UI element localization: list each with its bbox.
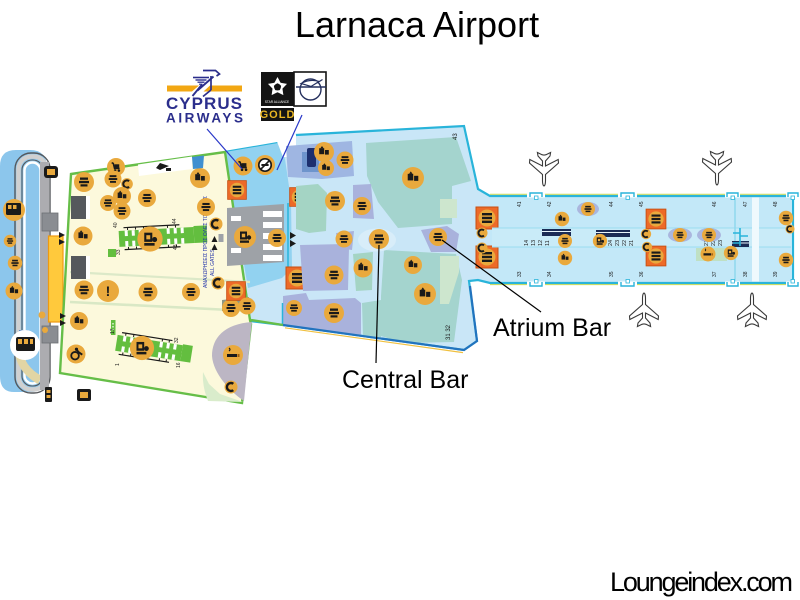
svg-text:21: 21 [629, 240, 635, 246]
svg-text:23: 23 [718, 240, 724, 246]
svg-text:12: 12 [538, 240, 544, 246]
svg-text:32: 32 [174, 337, 180, 343]
svg-text:41: 41 [517, 201, 523, 207]
svg-text:39: 39 [773, 271, 779, 277]
svg-text:16: 16 [176, 362, 182, 368]
svg-text:33: 33 [517, 271, 523, 277]
svg-text:ALL GATES: ALL GATES [210, 249, 216, 276]
svg-text:40: 40 [113, 222, 119, 228]
svg-text:33: 33 [116, 249, 122, 255]
svg-text:48: 48 [173, 244, 179, 250]
svg-text:GOLD: GOLD [260, 109, 296, 121]
svg-text:STAR ALLIANCE: STAR ALLIANCE [265, 100, 289, 104]
svg-text:42: 42 [547, 201, 553, 207]
svg-text:44: 44 [172, 218, 178, 224]
svg-text:Central Bar: Central Bar [342, 366, 468, 394]
svg-text:35: 35 [609, 271, 615, 277]
svg-text:45: 45 [639, 201, 645, 207]
svg-text:23: 23 [615, 240, 621, 246]
svg-text:34: 34 [547, 271, 553, 277]
svg-text:Loungeindex.com: Loungeindex.com [610, 567, 793, 597]
svg-text:44: 44 [609, 201, 615, 207]
svg-text:1: 1 [115, 363, 121, 366]
svg-text:48: 48 [773, 201, 779, 207]
svg-text:13: 13 [531, 240, 537, 246]
svg-text:36: 36 [639, 271, 645, 277]
svg-text:47: 47 [743, 201, 749, 207]
svg-text:31 32: 31 32 [446, 324, 452, 340]
svg-text:Larnaca Airport: Larnaca Airport [295, 4, 539, 45]
svg-text:46: 46 [712, 201, 718, 207]
svg-text:17: 17 [110, 328, 116, 334]
svg-text:38: 38 [743, 271, 749, 277]
svg-text:Atrium Bar: Atrium Bar [493, 314, 611, 342]
svg-text:11: 11 [545, 240, 551, 246]
svg-text:24: 24 [608, 240, 614, 246]
svg-text:22: 22 [622, 240, 628, 246]
svg-text:14: 14 [524, 240, 530, 246]
svg-text:37: 37 [712, 271, 718, 277]
svg-text:43: 43 [453, 133, 459, 140]
